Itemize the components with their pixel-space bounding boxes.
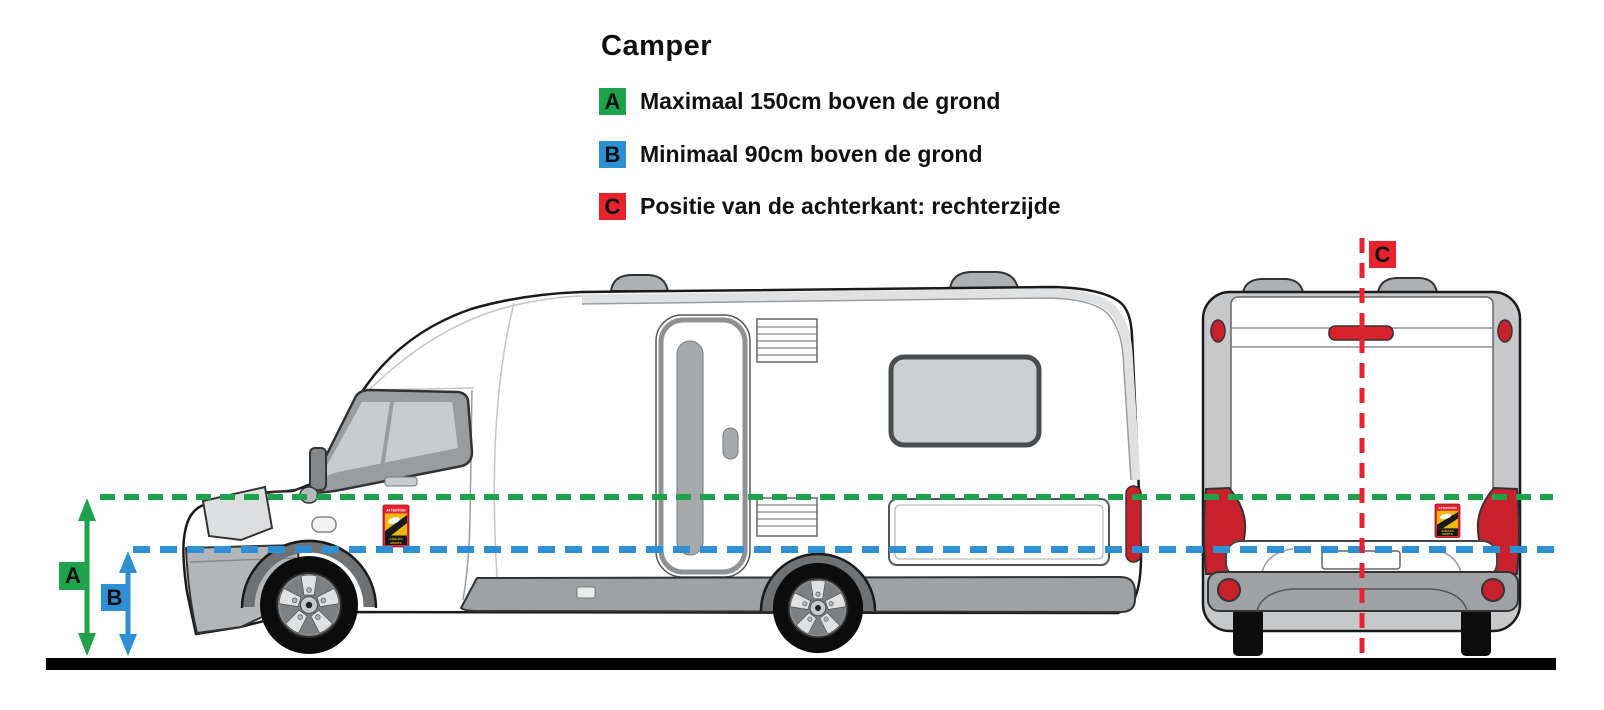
window-sill-trim <box>385 477 417 486</box>
ground-line <box>46 658 1556 670</box>
skirt-step <box>577 587 595 598</box>
roof-vent-1 <box>611 275 668 291</box>
rear-wheel <box>773 563 863 653</box>
headlight <box>203 487 272 540</box>
lower-vent-grille <box>757 498 817 536</box>
rear-wheel-left <box>1233 608 1263 656</box>
legend-text-a: Maximaal 150cm boven de grond <box>640 88 1000 115</box>
front-wheel <box>260 556 358 654</box>
side-window <box>891 357 1039 445</box>
fog-light-left <box>1218 579 1240 601</box>
legend-item-min-height: B Minimaal 90cm boven de grond <box>599 141 983 168</box>
third-brake-light <box>1329 326 1393 340</box>
legend-key-b: B <box>599 141 626 168</box>
sticker-bottom-text-1: ANGLES <box>1441 529 1454 533</box>
marker-c-label: C <box>1369 241 1396 268</box>
marker-a-label: A <box>59 562 87 590</box>
door-window-capsule <box>677 341 703 555</box>
rear-wheel-right <box>1461 608 1491 656</box>
legend-key-a: A <box>599 88 626 115</box>
door-handle <box>723 428 738 459</box>
diagram-title: Camper <box>601 30 712 63</box>
angles-morts-sticker-side: ATTENTION ANGLES MORTS <box>383 505 409 547</box>
legend-item-max-height: A Maximaal 150cm boven de grond <box>599 88 1000 115</box>
side-view-camper: ATTENTION ANGLES MORTS <box>183 272 1141 654</box>
camper-height-diagram: ATTENTION ANGLES MORTS <box>0 0 1604 710</box>
rear-marker-light-right <box>1498 320 1512 342</box>
indicator-lamp <box>312 517 336 532</box>
legend-text-b: Minimaal 90cm boven de grond <box>640 141 983 168</box>
sticker-bottom-text-2: MORTS <box>1442 532 1453 536</box>
marker-b-label: B <box>101 584 128 611</box>
legend-text-c: Positie van de achterkant: rechterzijde <box>640 193 1061 220</box>
fog-light-right <box>1482 579 1504 601</box>
rear-marker-light-left <box>1211 320 1225 342</box>
angles-morts-sticker-rear: ATTENTION ANGLES MORTS <box>1435 504 1460 538</box>
sticker-bottom-text-2: MORTS <box>390 541 401 545</box>
legend-item-rear-position: C Positie van de achterkant: rechterzijd… <box>599 193 1061 220</box>
side-mirror <box>310 448 326 490</box>
upper-vent-grille <box>757 319 817 362</box>
legend-key-c: C <box>599 193 626 220</box>
sticker-top-text: ATTENTION <box>386 508 406 512</box>
sticker-top-text: ATTENTION <box>1438 506 1456 510</box>
storage-hatch <box>889 499 1109 565</box>
